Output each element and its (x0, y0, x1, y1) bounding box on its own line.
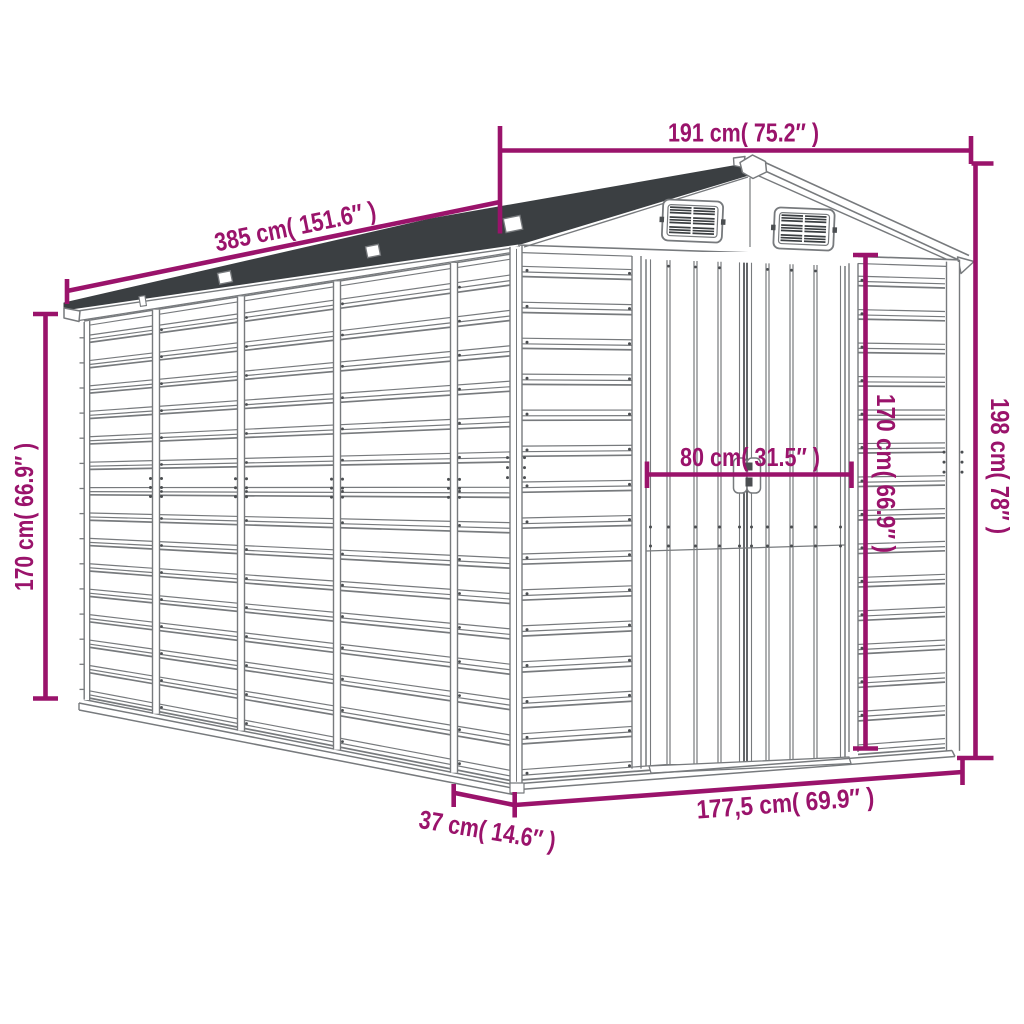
svg-text:198 cm( 78″ ): 198 cm( 78″ ) (985, 398, 1015, 534)
svg-text:170 cm( 66.9″ ): 170 cm( 66.9″ ) (9, 443, 39, 591)
svg-text:80 cm( 31.5″ ): 80 cm( 31.5″ ) (680, 442, 820, 472)
svg-text:191 cm( 75.2″ ): 191 cm( 75.2″ ) (668, 118, 819, 148)
svg-text:37 cm( 14.6″ ): 37 cm( 14.6″ ) (417, 804, 558, 856)
svg-text:170 cm( 66.9″ ): 170 cm( 66.9″ ) (871, 394, 901, 553)
